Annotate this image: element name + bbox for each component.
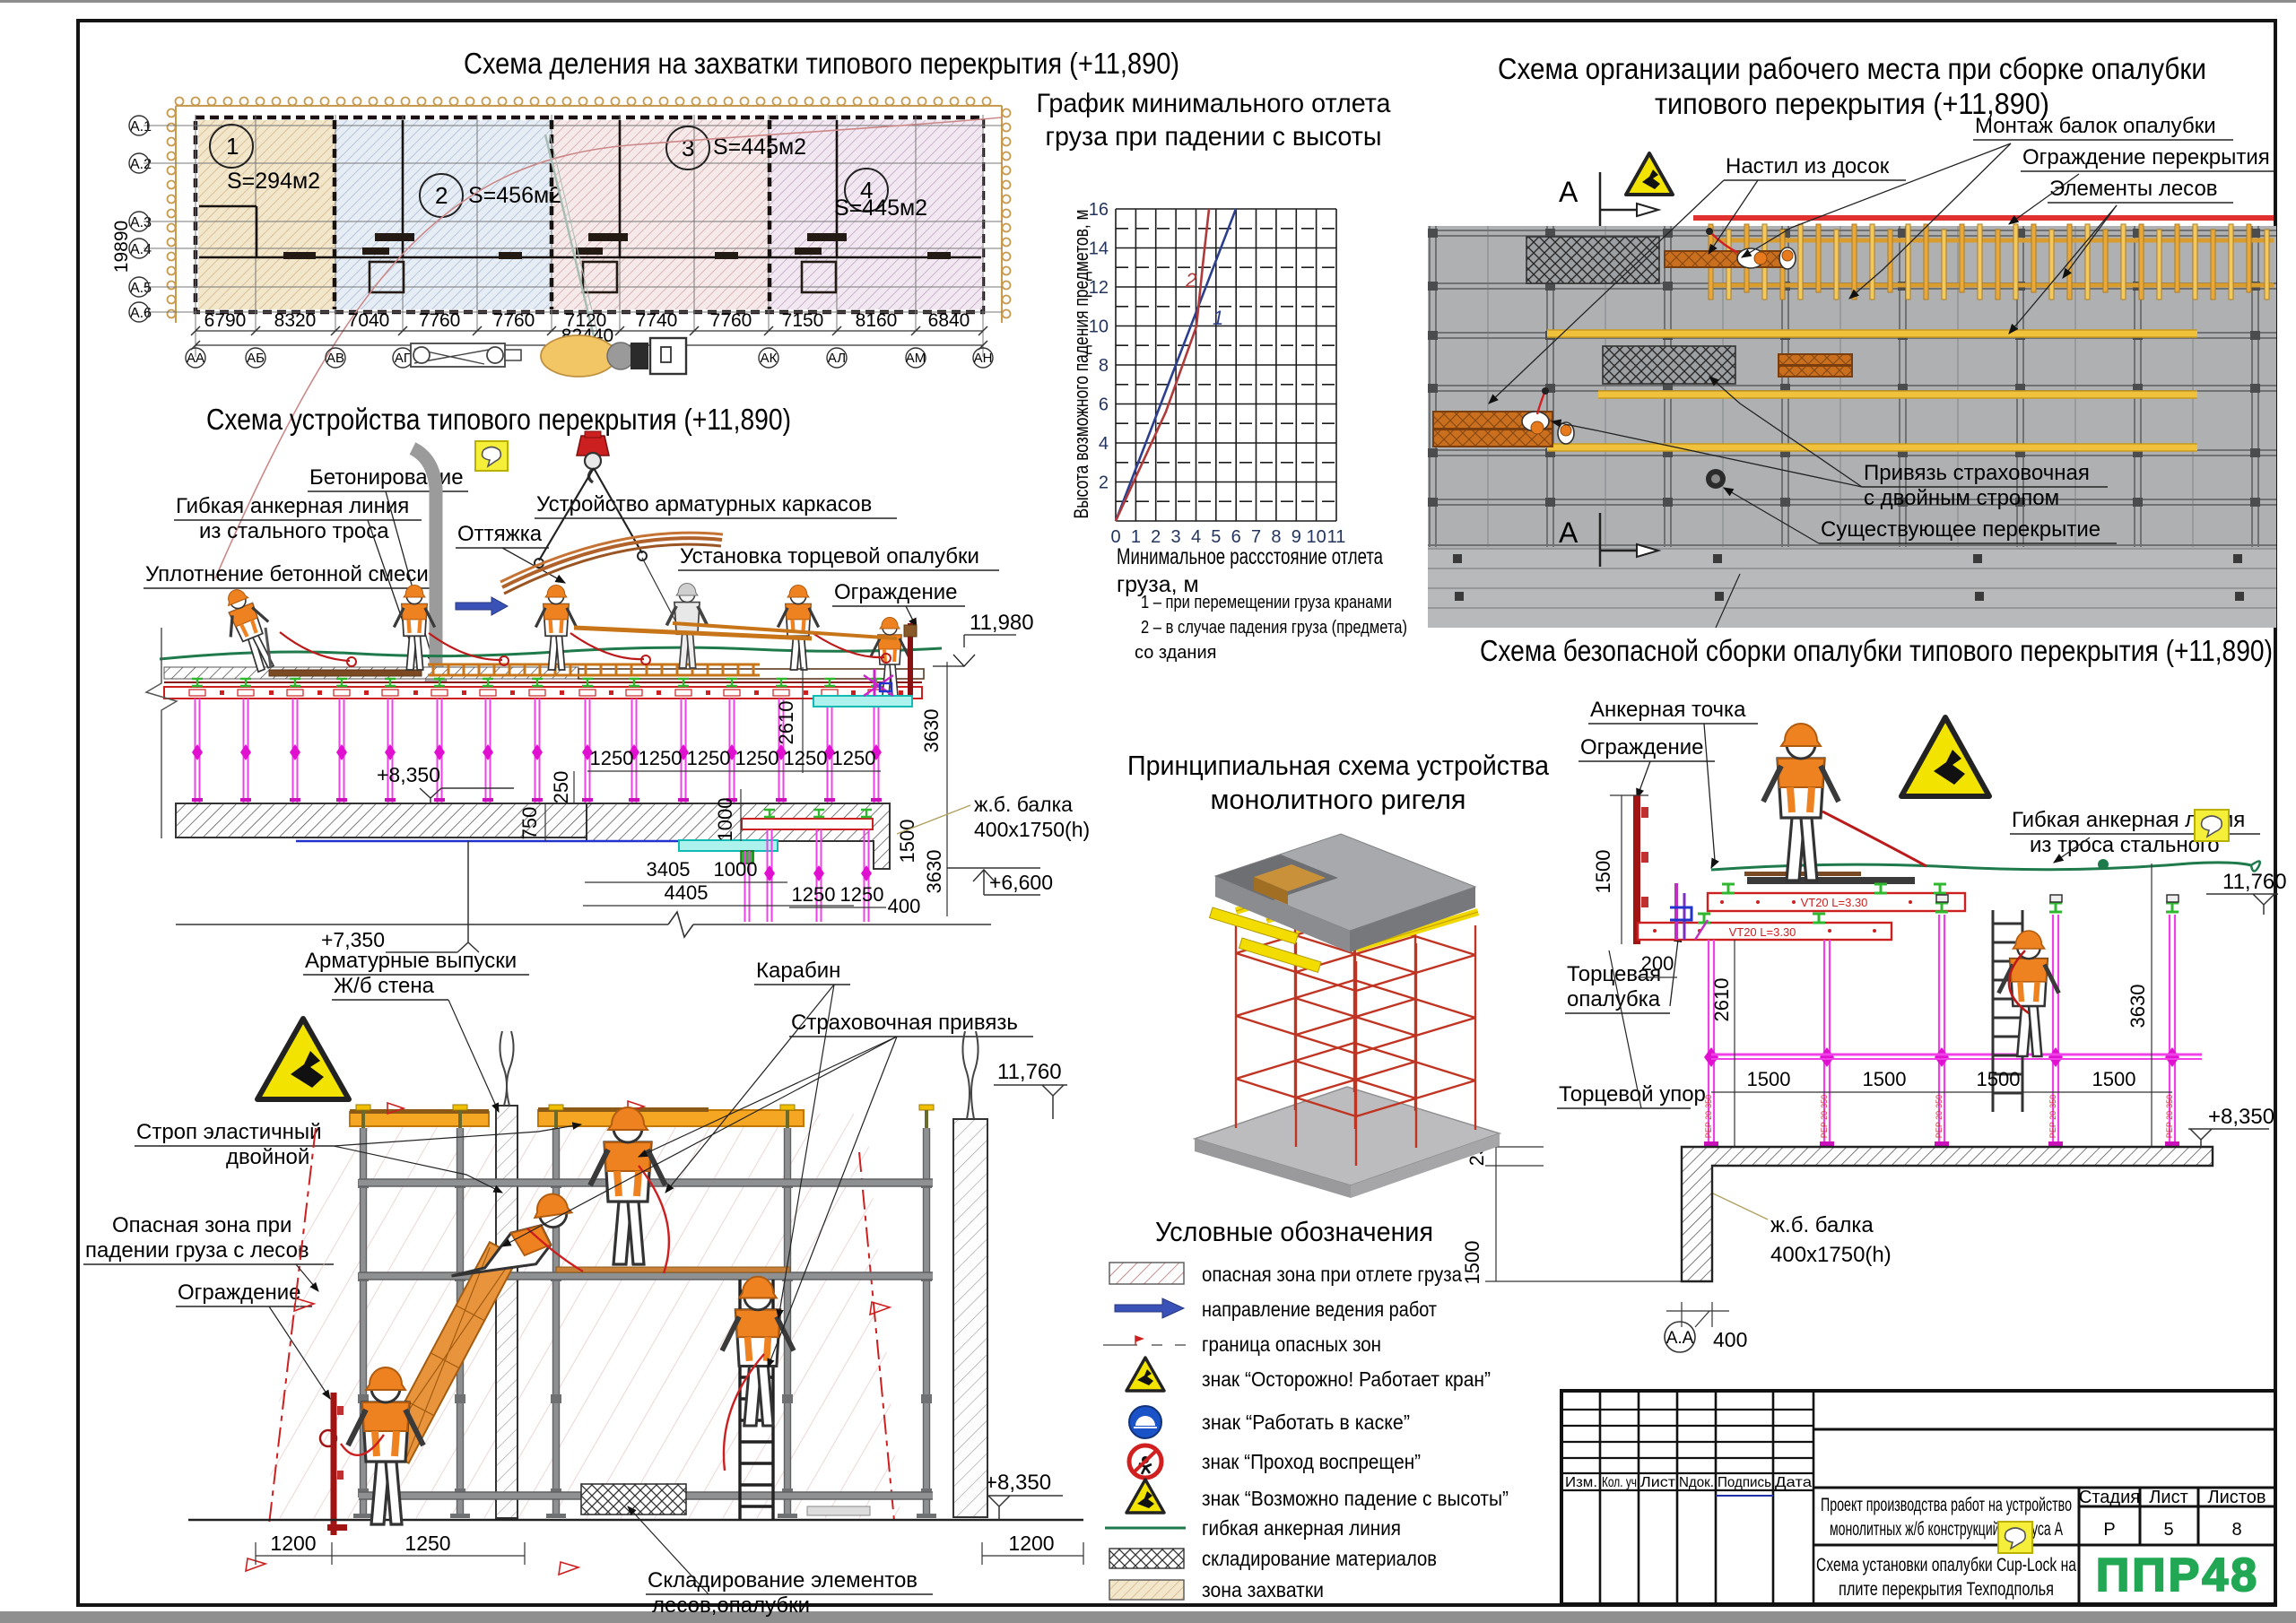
svg-text:3405: 3405: [647, 858, 691, 881]
svg-text:1250: 1250: [735, 747, 779, 769]
svg-text:2: 2: [435, 182, 448, 209]
svg-text:1500: 1500: [896, 820, 918, 864]
svg-text:2: 2: [1099, 473, 1109, 493]
svg-text:Р: Р: [2103, 1520, 2115, 1540]
svg-text:1500: 1500: [1977, 1068, 2021, 1090]
svg-text:А.А: А.А: [1666, 1329, 1694, 1348]
svg-text:8: 8: [2231, 1520, 2241, 1540]
svg-text:7740: 7740: [636, 310, 678, 331]
svg-text:6790: 6790: [204, 310, 247, 331]
svg-text:Подпись: Подпись: [1718, 1475, 1771, 1490]
svg-text:400: 400: [1713, 1328, 1747, 1351]
svg-text:зона захватки: зона захватки: [1202, 1578, 1324, 1601]
svg-text:ППР48: ППР48: [2096, 1549, 2259, 1601]
svg-text:А: А: [1559, 516, 1578, 549]
svg-text:3: 3: [682, 135, 694, 161]
svg-text:7760: 7760: [493, 310, 535, 331]
svg-text:400х1750(h): 400х1750(h): [1770, 1243, 1892, 1267]
svg-text:знак “Проход воспрещен”: знак “Проход воспрещен”: [1202, 1450, 1421, 1473]
svg-text:Принципиальная схема устройств: Принципиальная схема устройства: [1127, 750, 1550, 781]
svg-text:АГ: АГ: [395, 351, 411, 366]
svg-text:со здания: со здания: [1135, 643, 1216, 663]
svg-text:1: 1: [1213, 307, 1223, 329]
svg-text:PEP 20-350: PEP 20-350: [1704, 1095, 1713, 1138]
svg-text:250: 250: [550, 771, 572, 804]
svg-text:опалубка: опалубка: [1567, 987, 1661, 1011]
svg-text:знак “Возможно падение с высот: знак “Возможно падение с высоты”: [1202, 1487, 1509, 1510]
svg-text:1250: 1250: [840, 883, 884, 906]
svg-text:3630: 3630: [923, 850, 945, 894]
svg-text:Настил из досок: Настил из досок: [1726, 154, 1890, 178]
svg-text:Схема устройства типового пере: Схема устройства типового перекрытия (+1…: [206, 403, 791, 436]
svg-text:+8,350: +8,350: [377, 763, 440, 786]
svg-text:Ж/б стена: Ж/б стена: [334, 974, 435, 998]
svg-text:граница опасных зон: граница опасных зон: [1202, 1332, 1381, 1356]
svg-text:Стадия: Стадия: [2079, 1488, 2140, 1507]
svg-text:7150: 7150: [782, 310, 824, 331]
svg-text:Лист: Лист: [2149, 1488, 2187, 1507]
svg-text:VT20 L=3.30: VT20 L=3.30: [1801, 896, 1868, 909]
svg-text:знак “Осторожно! Работает кран: знак “Осторожно! Работает кран”: [1202, 1367, 1491, 1391]
svg-text:1: 1: [226, 133, 239, 160]
svg-text:Оттяжка: Оттяжка: [457, 522, 543, 546]
svg-text:Привязь страховочная: Привязь страховочная: [1864, 461, 2090, 485]
svg-text:ж.б. балка: ж.б. балка: [974, 793, 1073, 816]
svg-text:1200: 1200: [270, 1532, 316, 1555]
svg-text:знак “Работать в каске”: знак “Работать в каске”: [1202, 1410, 1410, 1434]
svg-text:1250: 1250: [792, 883, 836, 906]
svg-text:Условные обозначения: Условные обозначения: [1155, 1216, 1433, 1247]
svg-text:монолитного ригеля: монолитного ригеля: [1211, 784, 1466, 815]
svg-text:из троса стального: из троса стального: [2030, 833, 2220, 857]
svg-text:7760: 7760: [710, 310, 752, 331]
svg-text:1500: 1500: [1592, 850, 1614, 894]
svg-text:АВ: АВ: [326, 351, 344, 366]
svg-text:Установка торцевой опалубки: Установка торцевой опалубки: [680, 544, 979, 568]
svg-text:Монтаж балок опалубки: Монтаж балок опалубки: [1975, 114, 2216, 138]
svg-text:2 – в случае падения груза (пр: 2 – в случае падения груза (предмета): [1141, 618, 1407, 638]
svg-text:Арматурные выпуски: Арматурные выпуски: [305, 949, 517, 973]
svg-text:Устройство арматурных каркасов: Устройство арматурных каркасов: [536, 492, 872, 516]
svg-text:12: 12: [1089, 278, 1109, 298]
svg-text:Схема установки опалубки Cup-L: Схема установки опалубки Cup-Lock на: [1816, 1555, 2076, 1575]
svg-text:Страховочная привязь: Страховочная привязь: [791, 1011, 1018, 1035]
svg-text:Ограждение: Ограждение: [178, 1280, 301, 1305]
svg-text:1250: 1250: [639, 747, 683, 769]
svg-text:S=456м2: S=456м2: [468, 183, 561, 208]
svg-text:Ограждение перекрытия: Ограждение перекрытия: [2022, 145, 2270, 169]
svg-text:груза при падении с высоты: груза при падении с высоты: [1046, 122, 1382, 152]
svg-text:Гибкая анкерная линия: Гибкая анкерная линия: [176, 494, 409, 518]
svg-text:PEP 20-350: PEP 20-350: [1820, 1095, 1829, 1138]
svg-text:Торцевой упор: Торцевой упор: [1559, 1082, 1706, 1107]
svg-text:1250: 1250: [590, 747, 634, 769]
svg-text:PEP 20-350: PEP 20-350: [1935, 1095, 1944, 1138]
svg-text:4: 4: [1099, 434, 1109, 454]
svg-text:Схема организации рабочего мес: Схема организации рабочего места при сбо…: [1498, 52, 2206, 85]
svg-text:400: 400: [888, 895, 921, 917]
svg-text:11,980: 11,980: [970, 611, 1034, 635]
svg-text:1000: 1000: [714, 858, 758, 881]
svg-text:10: 10: [1089, 317, 1109, 337]
svg-text:Элементы лесов: Элементы лесов: [2049, 177, 2218, 201]
svg-text:Анкерная точка: Анкерная точка: [1590, 698, 1746, 722]
svg-text:S=445м2: S=445м2: [834, 195, 927, 221]
svg-text:АМ: АМ: [906, 351, 926, 366]
svg-text:Схема деления на захватки типо: Схема деления на захватки типового перек…: [464, 47, 1179, 80]
svg-text:2610: 2610: [1710, 978, 1733, 1022]
svg-text:Существующее перекрытие: Существующее перекрытие: [1821, 517, 2100, 542]
svg-text:+8,350: +8,350: [985, 1471, 1051, 1495]
svg-text:1250: 1250: [687, 747, 731, 769]
svg-text:3630: 3630: [920, 709, 943, 753]
svg-text:Схема безопасной сборки опалуб: Схема безопасной сборки опалубки типовог…: [1480, 634, 2273, 667]
svg-text:падении груза с лесов: падении груза с лесов: [85, 1238, 309, 1263]
svg-text:Опасная зона при: Опасная зона при: [112, 1213, 291, 1237]
svg-text:АБ: АБ: [247, 351, 265, 366]
svg-text:8: 8: [1099, 356, 1109, 376]
svg-text:АА: АА: [187, 351, 204, 366]
svg-text:14: 14: [1089, 239, 1109, 259]
svg-text:16: 16: [1089, 200, 1109, 220]
svg-text:Дата: Дата: [1775, 1475, 1812, 1490]
svg-text:7760: 7760: [419, 310, 461, 331]
svg-text:Лист: Лист: [1640, 1475, 1676, 1490]
svg-text:S=294м2: S=294м2: [227, 169, 320, 194]
svg-text:1500: 1500: [1461, 1241, 1483, 1285]
svg-text:ж.б. балка: ж.б. балка: [1770, 1213, 1874, 1237]
svg-text:1250: 1250: [784, 747, 828, 769]
svg-text:8160: 8160: [856, 310, 898, 331]
svg-text:гибкая анкерная линия: гибкая анкерная линия: [1202, 1516, 1401, 1540]
svg-text:200: 200: [1641, 952, 1674, 975]
svg-text:2: 2: [1185, 269, 1196, 291]
svg-text:5: 5: [2163, 1520, 2173, 1540]
svg-text:из стального троса: из стального троса: [199, 519, 389, 543]
svg-text:6840: 6840: [928, 310, 970, 331]
svg-text:складирование материалов: складирование материалов: [1202, 1547, 1437, 1570]
svg-text:+6,600: +6,600: [989, 871, 1053, 894]
svg-text:Карабин: Карабин: [756, 959, 840, 983]
svg-text:8320: 8320: [274, 310, 317, 331]
svg-text:1500: 1500: [1747, 1068, 1791, 1090]
svg-text:График минимального отлета: График минимального отлета: [1037, 89, 1391, 118]
svg-text:PEP 20-350: PEP 20-350: [2165, 1095, 2174, 1138]
svg-text:двойной: двойной: [226, 1145, 309, 1169]
svg-text:лесов,опалубки: лесов,опалубки: [652, 1593, 810, 1618]
svg-text:АК: АК: [761, 351, 778, 366]
svg-text:1500: 1500: [2092, 1068, 2136, 1090]
svg-text:6: 6: [1099, 395, 1109, 415]
svg-text:400х1750(h): 400х1750(h): [974, 818, 1090, 841]
svg-text:опасная зона при отлете груза: опасная зона при отлете груза: [1202, 1263, 1462, 1286]
svg-text:VT20 L=3.30: VT20 L=3.30: [1729, 925, 1796, 939]
svg-text:с двойным стропом: с двойным стропом: [1864, 486, 2059, 510]
svg-text:А: А: [1559, 176, 1578, 208]
svg-text:+8,350: +8,350: [2208, 1105, 2274, 1129]
svg-text:Строп эластичный: Строп эластичный: [136, 1120, 322, 1144]
svg-text:19890: 19890: [111, 221, 132, 273]
svg-text:Кол. уч: Кол. уч: [1602, 1475, 1637, 1490]
svg-text:Nдок.: Nдок.: [1679, 1475, 1714, 1490]
svg-text:1250: 1250: [404, 1532, 450, 1555]
svg-text:АН: АН: [974, 351, 993, 366]
svg-text:PEP 20-350: PEP 20-350: [2048, 1095, 2057, 1138]
svg-text:1 – при перемещении груза кран: 1 – при перемещении груза кранами: [1141, 593, 1392, 612]
svg-text:2610: 2610: [775, 701, 797, 745]
svg-text:Минимальное рассстояние отлета: Минимальное рассстояние отлета: [1117, 544, 1383, 569]
svg-text:Листов: Листов: [2208, 1488, 2266, 1507]
svg-text:11,760: 11,760: [997, 1060, 1062, 1084]
svg-text:7040: 7040: [348, 310, 390, 331]
svg-text:АЛ: АЛ: [828, 351, 846, 366]
svg-text:750: 750: [518, 807, 541, 840]
svg-text:1500: 1500: [1863, 1068, 1907, 1090]
svg-text:Проект производства работ на у: Проект производства работ на устройство: [1821, 1495, 2072, 1515]
svg-text:1200: 1200: [1008, 1532, 1054, 1555]
svg-text:плите перекрытия Техподполья: плите перекрытия Техподполья: [1839, 1579, 2054, 1600]
svg-text:11,760: 11,760: [2222, 870, 2287, 894]
svg-text:Ограждение: Ограждение: [834, 580, 958, 604]
svg-text:3630: 3630: [2126, 985, 2149, 1028]
svg-text:Ограждение: Ограждение: [1580, 735, 1704, 759]
svg-text:1000: 1000: [714, 798, 736, 842]
svg-text:4405: 4405: [665, 881, 709, 904]
svg-text:направление ведения работ: направление ведения работ: [1202, 1298, 1437, 1321]
svg-text:1250: 1250: [832, 747, 876, 769]
svg-text:Изм.: Изм.: [1565, 1475, 1597, 1490]
